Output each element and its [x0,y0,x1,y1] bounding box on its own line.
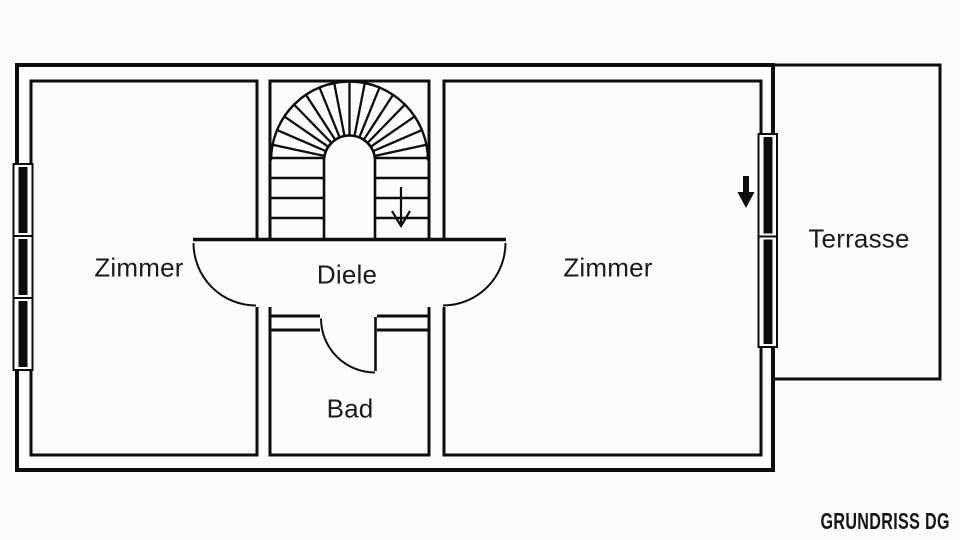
room-label-terrasse: Terrasse [808,224,909,255]
stairs-down-arrow-icon [392,187,410,226]
stair-treads-radial [272,82,427,156]
bathroom-walls [270,316,429,330]
room-label-bad: Bad [327,394,374,425]
room-label-zimmer-left: Zimmer [94,253,183,284]
terrace-outline [773,65,940,379]
stair-void-outline [324,136,375,238]
door-arc-left [194,243,257,306]
terrace-door-arrow-icon [738,176,755,208]
room-label-zimmer-right: Zimmer [563,253,652,284]
plan-caption: GRUNDRISS DG [821,508,950,535]
stair-treads-straight [271,158,428,218]
floor-plan-page: Zimmer Diele Zimmer Bad Terrasse GRUNDRI… [0,0,960,540]
staircase [271,82,428,239]
window-right [759,134,778,347]
window-left [14,164,33,370]
room-label-diele: Diele [317,260,377,291]
bath-door-arc [321,319,375,373]
door-arc-right [443,243,506,306]
